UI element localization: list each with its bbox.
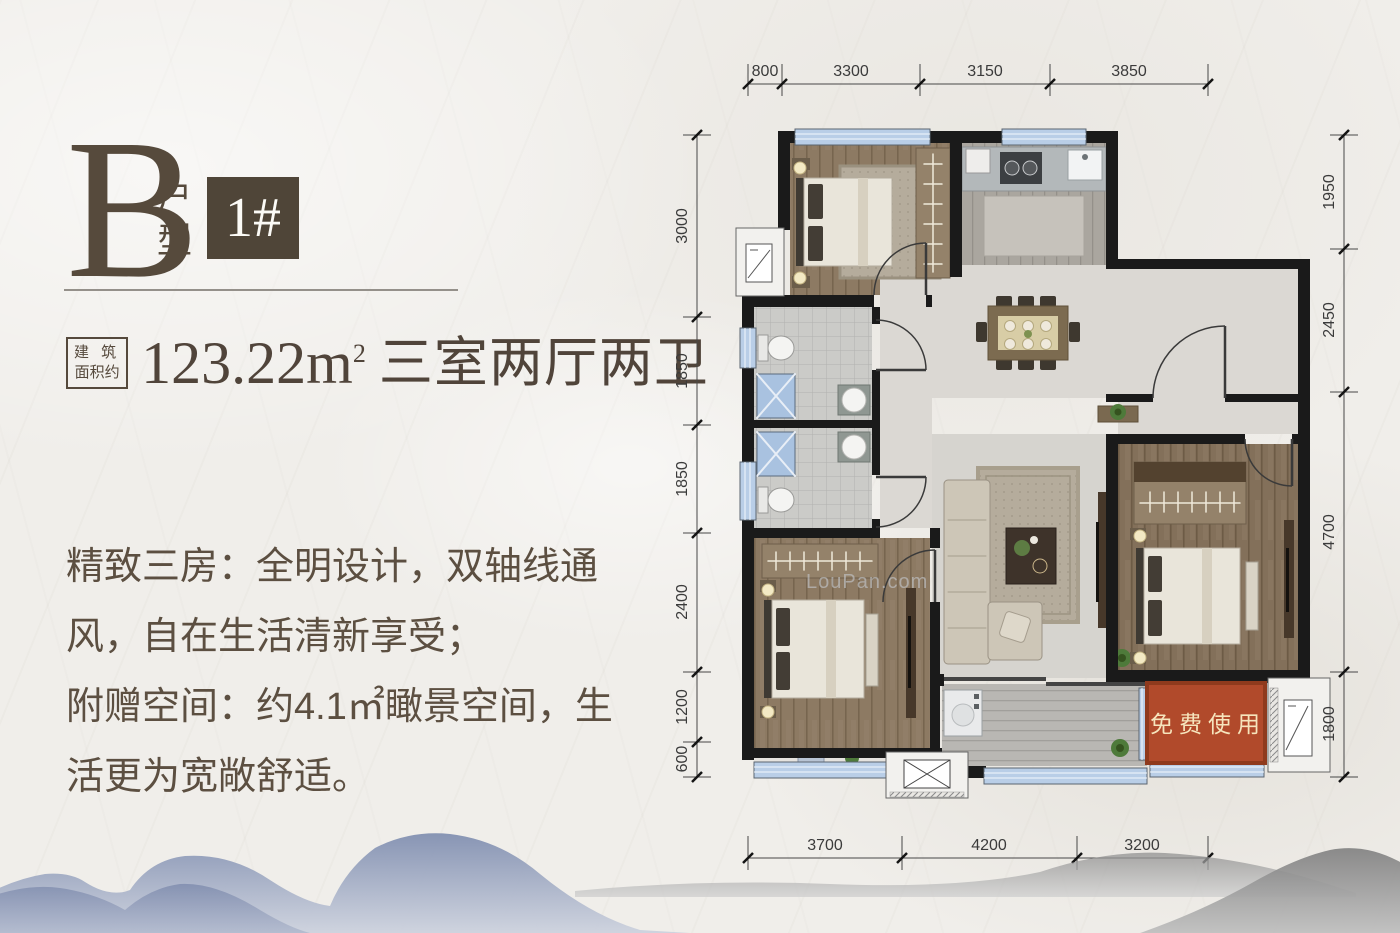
burner: [1005, 161, 1019, 175]
duvet-fold: [1202, 548, 1212, 644]
bench: [866, 614, 878, 686]
lamp: [762, 584, 774, 596]
pillow: [1148, 600, 1162, 636]
dim-top-3: 3150: [967, 63, 1003, 80]
kitchen-cabinet: [966, 149, 990, 173]
tv-living: [1096, 522, 1099, 602]
dim-bottom-3: 3200: [1124, 837, 1160, 854]
dim-right-4: 1800: [1321, 706, 1338, 742]
coffee-table: [1006, 528, 1056, 584]
lamp: [794, 162, 806, 174]
dim-right-3: 4700: [1321, 514, 1338, 550]
dining-set: [976, 296, 1080, 370]
pillow: [808, 226, 823, 261]
bed-headboard: [796, 178, 804, 266]
pillow: [776, 652, 790, 690]
sofa: [944, 480, 990, 664]
lamp: [1134, 530, 1146, 542]
dim-left-1: 3000: [674, 208, 691, 244]
tv-cabinet-living: [1098, 492, 1106, 628]
dim-bottom-2: 4200: [971, 837, 1007, 854]
bed-headboard: [764, 600, 772, 698]
plant-center: [1115, 409, 1122, 416]
lamp: [762, 706, 774, 718]
window-bedroom-tl: [795, 129, 930, 145]
duvet-fold: [858, 178, 868, 266]
lamp: [1134, 652, 1146, 664]
tv-bl: [908, 616, 911, 688]
mountain-decoration: [0, 833, 1400, 933]
dim-top-2: 3300: [833, 63, 869, 80]
ac-platform-bottom: [886, 752, 968, 798]
dim-right-1: 1950: [1321, 174, 1338, 210]
dim-right-2: 2450: [1321, 302, 1338, 338]
washer-knob: [974, 704, 979, 709]
bench: [1246, 562, 1258, 630]
faucet: [1082, 154, 1088, 160]
ac-platform-left: [736, 228, 784, 296]
window-balcony: [984, 768, 1147, 784]
window-bedroom-bl: [754, 762, 886, 778]
tv-master: [1286, 548, 1289, 612]
washer-door: [952, 704, 974, 726]
pillow: [776, 608, 790, 646]
dim-left-2: 1850: [674, 353, 691, 389]
dim-left-4: 2400: [674, 584, 691, 620]
dim-top-1: 800: [752, 63, 779, 80]
dim-left-6: 600: [674, 746, 691, 773]
floor-plan-graphic: 免费使用 800: [0, 0, 1400, 933]
lamp: [794, 272, 806, 284]
bed-headboard: [1136, 548, 1144, 644]
duvet-fold: [826, 600, 836, 698]
plant-center: [1116, 744, 1124, 752]
pillow: [1148, 556, 1162, 592]
watermark: LouPan.com: [806, 571, 928, 593]
window-bath-1: [740, 328, 756, 368]
burner: [1023, 161, 1037, 175]
plant-center: [1118, 654, 1126, 662]
free-space-box: 免费使用: [1147, 683, 1266, 763]
dish: [1030, 536, 1038, 544]
plant: [1014, 540, 1030, 556]
window-free-space-bottom: [1150, 763, 1264, 777]
room-foyer: [1118, 398, 1298, 434]
wardrobe-top: [1134, 462, 1246, 482]
dim-bottom-1: 3700: [807, 837, 843, 854]
kitchen-island: [984, 196, 1084, 256]
window-kitchen: [1002, 129, 1086, 145]
pillow: [808, 184, 823, 219]
window-bath-2: [740, 462, 756, 520]
dim-left-5: 1200: [674, 689, 691, 725]
free-space-label: 免费使用: [1150, 712, 1266, 737]
dim-top-4: 3850: [1111, 63, 1147, 80]
washer-knob: [974, 694, 979, 699]
room-dining-entry: [880, 265, 1298, 398]
dim-left-3: 1850: [674, 461, 691, 497]
